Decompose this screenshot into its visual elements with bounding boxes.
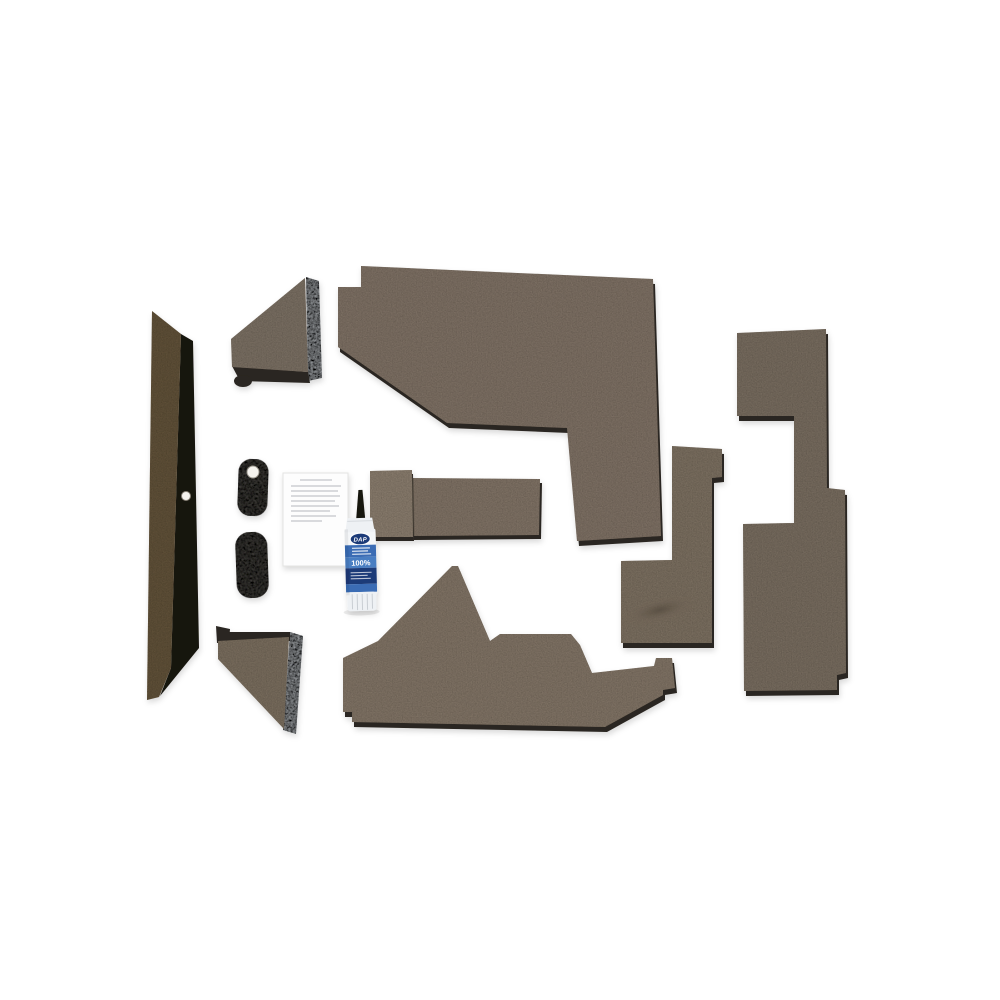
cushion-seam <box>413 478 414 536</box>
percent-text: 100% <box>351 558 371 568</box>
instruction-sheet <box>283 473 348 566</box>
panel-face <box>231 278 308 372</box>
panel-face <box>218 637 289 729</box>
cushion-flap <box>370 470 413 537</box>
label-bottom-strip <box>346 584 377 593</box>
fastener-dot <box>182 492 191 501</box>
stepped-cushion-piece <box>370 470 542 541</box>
foam-pad-lower <box>235 531 269 598</box>
panel-face <box>737 329 846 691</box>
product-photo: DAP 100% <box>0 0 1000 1000</box>
cushion-body <box>412 478 540 536</box>
paper <box>283 473 348 566</box>
foam-pad-upper <box>237 458 269 516</box>
tall-side-panel <box>147 311 199 700</box>
foam-base-foot <box>234 375 252 387</box>
corner-wedge-panel-lower <box>216 626 303 734</box>
pad-body <box>235 531 269 598</box>
corner-wedge-panel-upper <box>231 277 322 387</box>
brand-text: DAP <box>354 537 368 543</box>
z-shaped-panel-right <box>737 329 848 696</box>
tube-rim-line <box>347 521 372 522</box>
tube-label: DAP 100% <box>345 532 378 593</box>
fastener-dot <box>247 466 259 478</box>
tube-nozzle <box>355 490 365 519</box>
metal-edge <box>306 277 322 381</box>
kit-layout-canvas: DAP 100% <box>0 0 1000 1000</box>
